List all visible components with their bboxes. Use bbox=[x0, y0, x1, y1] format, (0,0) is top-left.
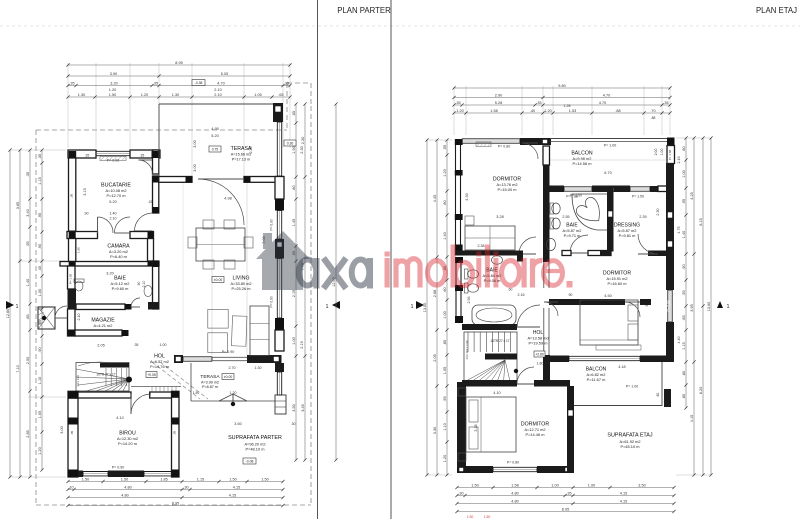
svg-text:4.70: 4.70 bbox=[603, 93, 610, 97]
svg-text:1.20: 1.20 bbox=[443, 169, 447, 176]
svg-text:P= 1.50: P= 1.50 bbox=[632, 195, 644, 199]
svg-text:1.10: 1.10 bbox=[38, 377, 42, 384]
svg-text:1.50: 1.50 bbox=[261, 477, 268, 481]
svg-text:.90: .90 bbox=[568, 293, 573, 297]
svg-text:0.75: 0.75 bbox=[212, 148, 219, 152]
svg-text:1.05: 1.05 bbox=[38, 411, 42, 418]
svg-text:10TR 27 x 17: 10TR 27 x 17 bbox=[96, 373, 115, 377]
svg-text:.80: .80 bbox=[682, 371, 686, 376]
svg-text:1.00: 1.00 bbox=[292, 337, 296, 344]
svg-text:1.00: 1.00 bbox=[660, 149, 664, 156]
svg-text:1.90: 1.90 bbox=[292, 146, 296, 153]
svg-text:P=48.10 m: P=48.10 m bbox=[246, 447, 265, 452]
svg-text:A=3.99 m2: A=3.99 m2 bbox=[201, 381, 219, 385]
svg-text:10TR 27 x 17: 10TR 27 x 17 bbox=[490, 339, 509, 343]
svg-text:P= 0.90: P= 0.90 bbox=[270, 296, 274, 307]
svg-text:.30: .30 bbox=[458, 491, 463, 495]
svg-text:.70: .70 bbox=[650, 109, 655, 113]
svg-text:4.18: 4.18 bbox=[618, 365, 625, 369]
svg-text:13.60: 13.60 bbox=[707, 302, 711, 312]
svg-text:-0.38: -0.38 bbox=[195, 81, 203, 85]
svg-text:P= 0.80: P= 0.80 bbox=[667, 300, 671, 311]
svg-text:P=45.10 m: P=45.10 m bbox=[621, 444, 640, 449]
svg-text:TERASA: TERASA bbox=[200, 374, 220, 380]
svg-text:14 x 114 = 1.90: 14 x 114 = 1.90 bbox=[465, 340, 469, 360]
svg-text:6.70: 6.70 bbox=[604, 171, 611, 175]
svg-text:.65: .65 bbox=[292, 111, 296, 116]
svg-text:.35: .35 bbox=[153, 81, 158, 85]
svg-text:1.20: 1.20 bbox=[443, 455, 447, 462]
svg-text:6.15: 6.15 bbox=[699, 218, 703, 225]
svg-text:1.80: 1.80 bbox=[537, 362, 544, 366]
svg-text:P= 0.90: P= 0.90 bbox=[270, 219, 274, 230]
svg-text:P=14.76 m: P=14.76 m bbox=[150, 364, 169, 369]
svg-text:3.00: 3.00 bbox=[193, 164, 197, 171]
svg-text:.65: .65 bbox=[278, 93, 283, 97]
svg-text:6.20: 6.20 bbox=[699, 387, 703, 394]
svg-text:13.00: 13.00 bbox=[423, 303, 427, 313]
svg-text:1.20: 1.20 bbox=[141, 93, 148, 97]
svg-text:2.10: 2.10 bbox=[142, 281, 146, 288]
svg-text:P= 1.88: P= 1.88 bbox=[668, 149, 672, 160]
svg-text:1: 1 bbox=[326, 304, 329, 310]
svg-text:3.60: 3.60 bbox=[234, 422, 241, 426]
svg-text:1.85: 1.85 bbox=[160, 477, 167, 481]
svg-text:2.10: 2.10 bbox=[214, 88, 221, 92]
svg-text:.35: .35 bbox=[85, 153, 90, 157]
svg-text:1.00: 1.00 bbox=[38, 289, 42, 296]
svg-text:4.50: 4.50 bbox=[604, 294, 611, 298]
svg-text:.85: .85 bbox=[682, 394, 686, 399]
svg-text:1.20: 1.20 bbox=[544, 109, 551, 113]
svg-text:2.30: 2.30 bbox=[300, 146, 304, 153]
svg-text:2.30: 2.30 bbox=[301, 137, 305, 144]
svg-text:.45: .45 bbox=[38, 266, 42, 271]
svg-text:1: 1 bbox=[727, 304, 730, 310]
svg-text:.85: .85 bbox=[443, 340, 447, 345]
svg-text:3.45: 3.45 bbox=[301, 404, 305, 411]
svg-text:1.05: 1.05 bbox=[254, 93, 261, 97]
svg-text:3.40: 3.40 bbox=[26, 209, 30, 216]
svg-text:2.55: 2.55 bbox=[562, 215, 569, 219]
svg-text:2.90: 2.90 bbox=[495, 93, 502, 97]
svg-text:P= 0.90: P= 0.90 bbox=[222, 350, 235, 354]
svg-text:2.19: 2.19 bbox=[292, 290, 296, 297]
svg-text:.35: .35 bbox=[173, 431, 177, 436]
svg-text:PLAN ETAJ: PLAN ETAJ bbox=[756, 6, 797, 15]
svg-text:4.10: 4.10 bbox=[116, 416, 123, 420]
svg-text:3.28: 3.28 bbox=[496, 215, 503, 219]
svg-text:.80: .80 bbox=[292, 185, 296, 190]
svg-text:1.50: 1.50 bbox=[109, 93, 116, 97]
svg-text:P=11.67 m: P=11.67 m bbox=[587, 377, 606, 382]
svg-text:.95: .95 bbox=[38, 213, 42, 218]
svg-text:4.15: 4.15 bbox=[620, 499, 627, 503]
svg-text:1.50: 1.50 bbox=[121, 477, 128, 481]
svg-text:.60: .60 bbox=[508, 288, 513, 292]
svg-text:4.75: 4.75 bbox=[677, 227, 681, 234]
svg-text:.40: .40 bbox=[530, 109, 535, 113]
svg-text:.35: .35 bbox=[38, 154, 42, 159]
svg-text:.60: .60 bbox=[443, 287, 447, 292]
svg-text:P=9.71 m: P=9.71 m bbox=[564, 233, 581, 238]
svg-text:±0.00: ±0.00 bbox=[214, 278, 223, 282]
svg-text:1.30: 1.30 bbox=[172, 93, 179, 97]
svg-text:.95: .95 bbox=[682, 290, 686, 295]
svg-text:4.80: 4.80 bbox=[121, 493, 128, 497]
svg-text:3.20: 3.20 bbox=[106, 272, 113, 276]
svg-text:2.19: 2.19 bbox=[677, 157, 681, 164]
svg-text:1.60: 1.60 bbox=[77, 247, 81, 253]
svg-text:4.15: 4.15 bbox=[620, 491, 627, 495]
svg-text:5.28: 5.28 bbox=[495, 101, 502, 105]
svg-text:P=19.59 m: P=19.59 m bbox=[529, 340, 548, 345]
svg-text:1: 1 bbox=[411, 304, 414, 310]
svg-text:1.45: 1.45 bbox=[292, 219, 296, 226]
svg-text:.35: .35 bbox=[455, 101, 460, 105]
svg-text:.35: .35 bbox=[536, 101, 541, 105]
svg-text:1.30: 1.30 bbox=[255, 366, 262, 370]
svg-text:1.10: 1.10 bbox=[443, 423, 447, 430]
svg-text:2.70: 2.70 bbox=[229, 366, 236, 370]
svg-text:3.65: 3.65 bbox=[16, 202, 20, 209]
svg-text:2.68: 2.68 bbox=[433, 290, 437, 297]
svg-text:3.95: 3.95 bbox=[690, 304, 694, 311]
svg-text:1.15: 1.15 bbox=[197, 477, 204, 481]
svg-text:2.10: 2.10 bbox=[77, 314, 81, 321]
svg-text:4.45: 4.45 bbox=[433, 195, 437, 202]
svg-text:2.16: 2.16 bbox=[518, 293, 525, 297]
svg-text:2.19: 2.19 bbox=[300, 341, 304, 348]
svg-text:P=6.40 m: P=6.40 m bbox=[110, 254, 127, 259]
svg-text:+0.05: +0.05 bbox=[147, 373, 156, 377]
svg-text:P=14.56 m: P=14.56 m bbox=[573, 161, 592, 166]
svg-text:P= 0.80: P= 0.80 bbox=[498, 145, 511, 149]
svg-text:2.30: 2.30 bbox=[249, 147, 253, 154]
svg-text:4.70: 4.70 bbox=[599, 101, 606, 105]
svg-text:1.00: 1.00 bbox=[160, 343, 167, 347]
svg-text:P= 1.00: P= 1.00 bbox=[626, 385, 639, 389]
svg-text:1.00: 1.00 bbox=[682, 170, 686, 177]
svg-text:3.30: 3.30 bbox=[433, 427, 437, 434]
svg-text:5.20: 5.20 bbox=[211, 134, 218, 138]
svg-text:1.50: 1.50 bbox=[484, 515, 491, 519]
svg-text:3.18: 3.18 bbox=[474, 424, 478, 431]
svg-text:.35: .35 bbox=[140, 153, 145, 157]
svg-text:3.50: 3.50 bbox=[638, 483, 645, 487]
svg-text:0.30: 0.30 bbox=[287, 142, 294, 146]
svg-text:2.93: 2.93 bbox=[467, 297, 471, 304]
svg-text:.35: .35 bbox=[26, 172, 30, 177]
svg-text:P=15.00 m: P=15.00 m bbox=[498, 187, 517, 192]
svg-text:2.39: 2.39 bbox=[639, 215, 646, 219]
svg-text:4.95: 4.95 bbox=[211, 127, 218, 131]
svg-text:P=9.81 m: P=9.81 m bbox=[619, 233, 636, 238]
svg-text:9.80: 9.80 bbox=[558, 84, 565, 88]
svg-text:1.53: 1.53 bbox=[569, 109, 576, 113]
svg-text:1.50: 1.50 bbox=[229, 477, 236, 481]
svg-text:2.00: 2.00 bbox=[654, 149, 658, 156]
svg-text:.90: .90 bbox=[137, 282, 141, 287]
svg-text:PLAN PARTER: PLAN PARTER bbox=[337, 6, 391, 15]
svg-text:.35: .35 bbox=[69, 194, 73, 199]
svg-text:1.40: 1.40 bbox=[26, 279, 30, 286]
svg-text:8.95: 8.95 bbox=[562, 507, 569, 511]
svg-text:5.05: 5.05 bbox=[221, 72, 228, 76]
svg-text:.35: .35 bbox=[134, 343, 139, 347]
svg-text:5.20: 5.20 bbox=[109, 200, 116, 204]
svg-text:.35: .35 bbox=[70, 431, 74, 436]
svg-text:P=14.46 m: P=14.46 m bbox=[526, 432, 545, 437]
svg-text:4.40: 4.40 bbox=[677, 337, 681, 344]
svg-text:.35: .35 bbox=[663, 101, 668, 105]
svg-text:3.20: 3.20 bbox=[110, 81, 117, 85]
svg-text:4.80: 4.80 bbox=[124, 485, 131, 489]
svg-text:2.00: 2.00 bbox=[26, 357, 30, 364]
svg-text:1.50: 1.50 bbox=[193, 391, 200, 395]
svg-text:.80: .80 bbox=[682, 146, 686, 151]
svg-text:.15: .15 bbox=[148, 200, 153, 204]
svg-text:8.95: 8.95 bbox=[172, 501, 179, 505]
svg-text:14 x 114: 14 x 114 bbox=[76, 375, 80, 387]
svg-text:P= 0.80: P= 0.80 bbox=[507, 461, 519, 465]
svg-text:P=25.26 m: P=25.26 m bbox=[232, 286, 251, 291]
svg-text:P= 1.00: P= 1.00 bbox=[604, 144, 617, 148]
svg-text:2.38: 2.38 bbox=[478, 244, 485, 248]
svg-text:SUPRAFATA ETAJ: SUPRAFATA ETAJ bbox=[607, 433, 653, 439]
svg-text:3.15: 3.15 bbox=[83, 188, 87, 195]
svg-text:.90: .90 bbox=[682, 264, 686, 269]
svg-text:+2.80: +2.80 bbox=[535, 353, 544, 357]
svg-text:1.05: 1.05 bbox=[443, 367, 447, 374]
svg-text:2.85: 2.85 bbox=[26, 430, 30, 437]
svg-text:3.00: 3.00 bbox=[60, 426, 64, 433]
svg-text:.35: .35 bbox=[69, 81, 74, 85]
svg-text:2.05: 2.05 bbox=[97, 344, 104, 348]
svg-text:.95: .95 bbox=[682, 199, 686, 204]
svg-text:1.30: 1.30 bbox=[78, 93, 85, 97]
svg-text:1.50: 1.50 bbox=[467, 515, 474, 519]
svg-text:1.50: 1.50 bbox=[471, 483, 478, 487]
svg-text:.85: .85 bbox=[682, 315, 686, 320]
svg-text:4.30: 4.30 bbox=[465, 193, 469, 200]
svg-text:1.58: 1.58 bbox=[511, 483, 518, 487]
svg-text:1.00: 1.00 bbox=[551, 483, 558, 487]
svg-text:1: 1 bbox=[16, 304, 19, 310]
svg-text:3.90: 3.90 bbox=[110, 72, 117, 76]
svg-text:.88: .88 bbox=[615, 109, 620, 113]
svg-text:1.00: 1.00 bbox=[588, 483, 595, 487]
svg-text:.95: .95 bbox=[26, 241, 30, 246]
svg-text:.85: .85 bbox=[26, 314, 30, 319]
svg-text:P= 0.90: P= 0.90 bbox=[112, 466, 125, 470]
svg-text:4.98: 4.98 bbox=[224, 197, 231, 201]
svg-text:2.05: 2.05 bbox=[433, 354, 437, 361]
svg-text:-0.08: -0.08 bbox=[246, 460, 254, 464]
svg-text:1.20: 1.20 bbox=[456, 109, 463, 113]
svg-text:4.10: 4.10 bbox=[493, 391, 500, 395]
svg-text:4.25: 4.25 bbox=[690, 192, 694, 199]
svg-text:P=9.60 m: P=9.60 m bbox=[112, 286, 129, 291]
svg-text:1.20: 1.20 bbox=[38, 447, 42, 454]
svg-text:.80: .80 bbox=[443, 200, 447, 205]
svg-text:2.10: 2.10 bbox=[214, 93, 221, 97]
svg-text:.90: .90 bbox=[38, 244, 42, 249]
svg-text:P=8.87 m: P=8.87 m bbox=[202, 385, 218, 389]
svg-text:P=14.20 m: P=14.20 m bbox=[118, 441, 137, 446]
svg-text:.55: .55 bbox=[443, 145, 447, 150]
svg-text:.30: .30 bbox=[183, 485, 188, 489]
svg-text:.30: .30 bbox=[291, 422, 296, 426]
svg-text:4.15: 4.15 bbox=[229, 493, 236, 497]
svg-text:1.20: 1.20 bbox=[109, 88, 116, 92]
svg-text:1.50: 1.50 bbox=[82, 477, 89, 481]
svg-text:4.80: 4.80 bbox=[511, 491, 518, 495]
svg-text:12.60: 12.60 bbox=[6, 309, 10, 319]
svg-text:3.00: 3.00 bbox=[193, 140, 197, 147]
svg-text:7.10: 7.10 bbox=[16, 365, 20, 372]
svg-text:3.50: 3.50 bbox=[292, 404, 296, 411]
svg-text:2.30: 2.30 bbox=[656, 208, 660, 215]
svg-text:4.15: 4.15 bbox=[690, 415, 694, 422]
svg-text:.60: .60 bbox=[656, 393, 660, 398]
svg-text:1.40: 1.40 bbox=[443, 232, 447, 239]
svg-text:P=17.13 m: P=17.13 m bbox=[232, 158, 250, 162]
svg-text:P= 1.58: P= 1.58 bbox=[69, 273, 73, 284]
svg-text:.35: .35 bbox=[566, 491, 571, 495]
svg-text:±0.00: ±0.00 bbox=[224, 375, 233, 379]
svg-text:2.10: 2.10 bbox=[110, 217, 117, 221]
svg-text:4.70: 4.70 bbox=[217, 81, 224, 85]
svg-text:1.40: 1.40 bbox=[110, 212, 117, 216]
svg-text:1.58: 1.58 bbox=[490, 109, 497, 113]
svg-text:1.40: 1.40 bbox=[682, 231, 686, 238]
svg-text:.35: .35 bbox=[284, 81, 289, 85]
svg-text:.10: .10 bbox=[68, 485, 73, 489]
svg-text:1.28: 1.28 bbox=[564, 104, 571, 108]
svg-text:.90: .90 bbox=[84, 212, 89, 216]
svg-text:P=16.60 m: P=16.60 m bbox=[608, 281, 627, 286]
svg-text:SUPRAFATA PARTER: SUPRAFATA PARTER bbox=[228, 435, 282, 441]
svg-text:4.15: 4.15 bbox=[233, 485, 240, 489]
svg-text:1.00: 1.00 bbox=[443, 311, 447, 318]
svg-text:1.15: 1.15 bbox=[682, 342, 686, 349]
svg-text:.90: .90 bbox=[38, 347, 42, 352]
svg-text:1.15: 1.15 bbox=[38, 177, 42, 184]
svg-text:.88: .88 bbox=[651, 116, 656, 120]
svg-text:P=12.70 m: P=12.70 m bbox=[107, 193, 126, 198]
svg-text:.95: .95 bbox=[443, 396, 447, 401]
svg-text:8.95: 8.95 bbox=[175, 61, 182, 65]
svg-text:4.80: 4.80 bbox=[511, 499, 518, 503]
